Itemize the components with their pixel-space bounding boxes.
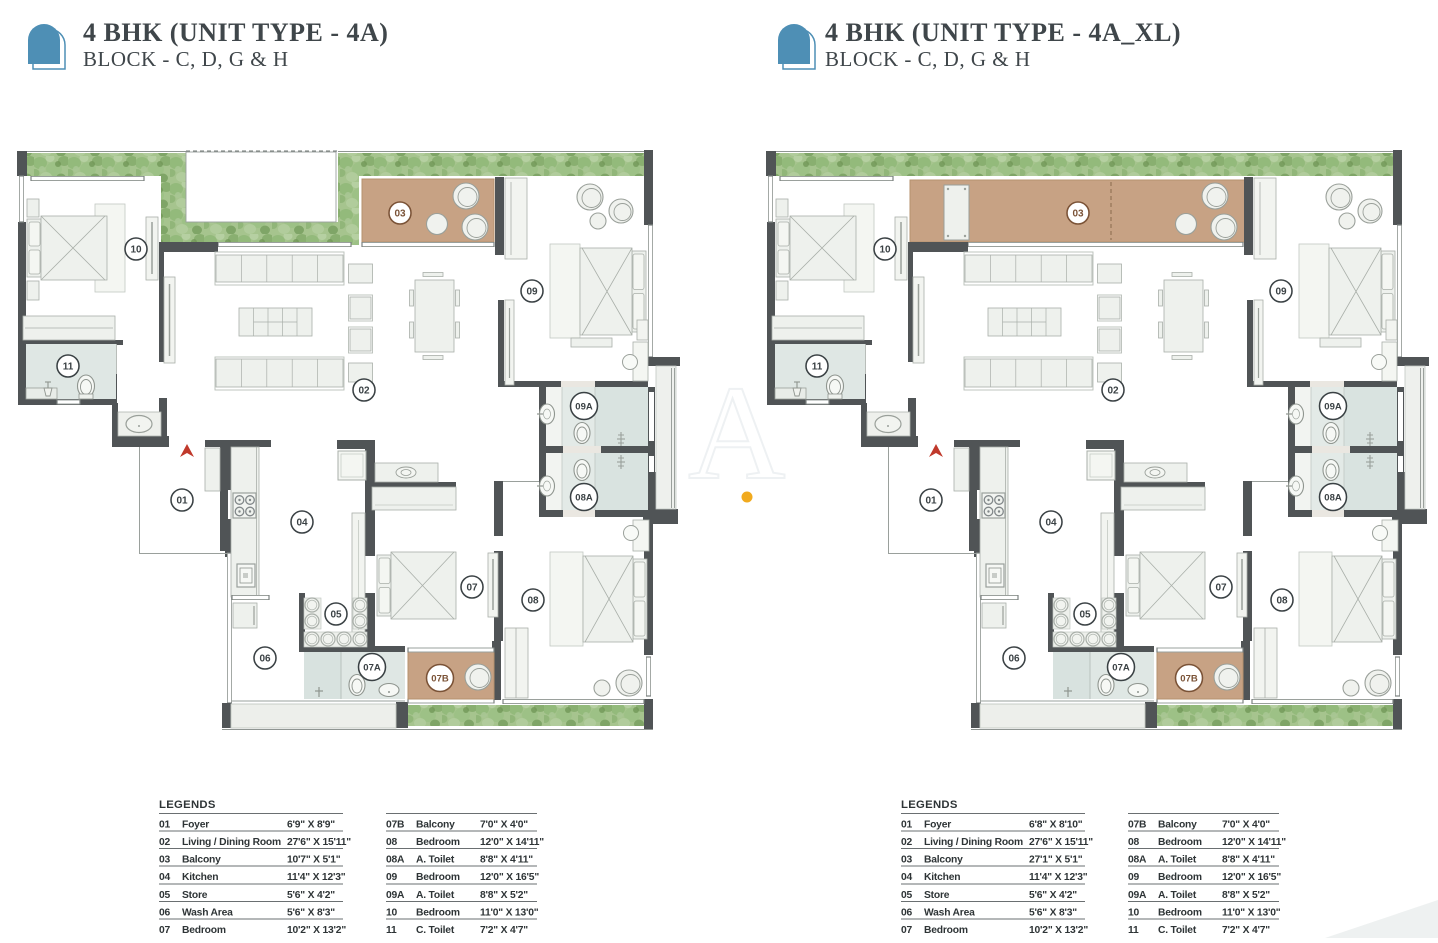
svg-text:11: 11: [63, 361, 74, 372]
svg-text:03: 03: [901, 854, 913, 865]
svg-text:05: 05: [1079, 609, 1091, 620]
svg-text:09: 09: [526, 286, 538, 297]
svg-text:Bedroom: Bedroom: [924, 925, 968, 936]
svg-text:6'8" X 8'10": 6'8" X 8'10": [1029, 819, 1083, 830]
svg-text:A. Toilet: A. Toilet: [1158, 890, 1197, 901]
svg-text:11'4" X 12'3": 11'4" X 12'3": [1029, 872, 1088, 883]
svg-text:BLOCK - C, D, G & H: BLOCK - C, D, G & H: [83, 47, 289, 71]
svg-text:08A: 08A: [1324, 492, 1342, 503]
svg-text:07A: 07A: [1112, 662, 1130, 673]
svg-text:11: 11: [386, 925, 397, 936]
svg-text:07: 07: [1215, 582, 1227, 593]
svg-text:09A: 09A: [1324, 401, 1342, 412]
svg-text:05: 05: [330, 609, 342, 620]
svg-text:10: 10: [1128, 907, 1140, 918]
svg-text:04: 04: [901, 872, 913, 883]
svg-text:07: 07: [466, 582, 478, 593]
svg-text:08: 08: [1276, 595, 1288, 606]
svg-text:04: 04: [159, 872, 171, 883]
svg-text:Balcony: Balcony: [416, 819, 455, 830]
svg-text:C. Toilet: C. Toilet: [416, 925, 455, 936]
svg-text:05: 05: [901, 890, 913, 901]
svg-text:Kitchen: Kitchen: [924, 872, 960, 883]
svg-text:11'0" X 13'0": 11'0" X 13'0": [1222, 907, 1281, 918]
svg-text:Bedroom: Bedroom: [416, 907, 460, 918]
svg-text:07: 07: [901, 925, 913, 936]
svg-text:A. Toilet: A. Toilet: [416, 854, 455, 865]
svg-text:7'0" X 4'0": 7'0" X 4'0": [480, 819, 528, 830]
svg-text:Living / Dining Room: Living / Dining Room: [924, 837, 1023, 848]
svg-text:Balcony: Balcony: [182, 854, 221, 865]
svg-text:5'6" X 8'3": 5'6" X 8'3": [1029, 907, 1077, 918]
svg-text:LEGENDS: LEGENDS: [159, 799, 216, 811]
svg-text:27'6" X 15'11": 27'6" X 15'11": [287, 837, 351, 848]
svg-text:09A: 09A: [575, 401, 593, 412]
svg-text:04: 04: [1045, 517, 1057, 528]
svg-text:A. Toilet: A. Toilet: [416, 890, 455, 901]
svg-text:LEGENDS: LEGENDS: [901, 799, 958, 811]
svg-text:06: 06: [1008, 653, 1020, 664]
svg-text:Bedroom: Bedroom: [1158, 837, 1202, 848]
svg-text:10'2" X 13'2": 10'2" X 13'2": [1029, 925, 1088, 936]
svg-text:5'6" X 4'2": 5'6" X 4'2": [287, 890, 335, 901]
svg-text:05: 05: [159, 890, 171, 901]
svg-text:5'6" X 8'3": 5'6" X 8'3": [287, 907, 335, 918]
svg-text:7'2" X 4'7": 7'2" X 4'7": [1222, 925, 1270, 936]
svg-text:10: 10: [386, 907, 398, 918]
svg-text:Wash Area: Wash Area: [924, 907, 975, 918]
svg-text:A. Toilet: A. Toilet: [1158, 854, 1197, 865]
svg-text:11'4" X 12'3": 11'4" X 12'3": [287, 872, 346, 883]
svg-text:02: 02: [159, 837, 171, 848]
svg-text:Foyer: Foyer: [182, 819, 209, 830]
svg-text:Bedroom: Bedroom: [416, 872, 460, 883]
svg-text:08A: 08A: [386, 854, 405, 865]
svg-text:07B: 07B: [431, 673, 449, 684]
svg-text:02: 02: [358, 385, 370, 396]
svg-text:07B: 07B: [1180, 673, 1198, 684]
svg-text:04: 04: [296, 517, 308, 528]
svg-text:08: 08: [1128, 837, 1140, 848]
svg-text:27'1" X 5'1": 27'1" X 5'1": [1029, 854, 1083, 865]
svg-text:10: 10: [130, 244, 142, 255]
svg-text:4 BHK (UNIT TYPE - 4A): 4 BHK (UNIT TYPE - 4A): [83, 18, 388, 47]
svg-text:Wash Area: Wash Area: [182, 907, 233, 918]
svg-text:7'2" X 4'7": 7'2" X 4'7": [480, 925, 528, 936]
svg-text:07B: 07B: [386, 819, 404, 830]
svg-text:BLOCK - C, D, G & H: BLOCK - C, D, G & H: [825, 47, 1031, 71]
svg-text:08: 08: [527, 595, 539, 606]
svg-text:C. Toilet: C. Toilet: [1158, 925, 1197, 936]
svg-text:11: 11: [1128, 925, 1139, 936]
svg-text:Bedroom: Bedroom: [1158, 872, 1202, 883]
svg-text:02: 02: [901, 837, 913, 848]
svg-text:6'9" X 8'9": 6'9" X 8'9": [287, 819, 335, 830]
svg-text:Bedroom: Bedroom: [1158, 907, 1202, 918]
svg-text:12'0" X 16'5": 12'0" X 16'5": [480, 872, 539, 883]
svg-text:8'8" X 4'11": 8'8" X 4'11": [1222, 854, 1275, 865]
svg-text:01: 01: [159, 819, 171, 830]
svg-text:01: 01: [925, 495, 937, 506]
svg-text:Balcony: Balcony: [1158, 819, 1197, 830]
svg-text:12'0" X 14'11": 12'0" X 14'11": [480, 837, 544, 848]
svg-text:8'8" X 5'2": 8'8" X 5'2": [1222, 890, 1270, 901]
svg-text:07A: 07A: [363, 662, 381, 673]
svg-text:06: 06: [901, 907, 913, 918]
svg-text:Bedroom: Bedroom: [416, 837, 460, 848]
svg-text:Bedroom: Bedroom: [182, 925, 226, 936]
svg-text:7'0" X 4'0": 7'0" X 4'0": [1222, 819, 1270, 830]
svg-text:01: 01: [901, 819, 913, 830]
svg-text:Balcony: Balcony: [924, 854, 963, 865]
svg-text:07: 07: [159, 925, 171, 936]
svg-text:10'2" X 13'2": 10'2" X 13'2": [287, 925, 346, 936]
svg-text:10'7" X 5'1": 10'7" X 5'1": [287, 854, 341, 865]
svg-text:Kitchen: Kitchen: [182, 872, 218, 883]
svg-text:Store: Store: [924, 890, 950, 901]
svg-text:09: 09: [1275, 286, 1287, 297]
svg-text:12'0" X 14'11": 12'0" X 14'11": [1222, 837, 1286, 848]
svg-text:07B: 07B: [1128, 819, 1146, 830]
svg-text:09A: 09A: [1128, 890, 1147, 901]
svg-text:27'6" X 15'11": 27'6" X 15'11": [1029, 837, 1093, 848]
svg-text:09A: 09A: [386, 890, 405, 901]
svg-text:Foyer: Foyer: [924, 819, 951, 830]
svg-text:Store: Store: [182, 890, 208, 901]
svg-text:5'6" X 4'2": 5'6" X 4'2": [1029, 890, 1077, 901]
svg-text:06: 06: [259, 653, 271, 664]
svg-text:03: 03: [1072, 208, 1084, 219]
svg-text:11: 11: [812, 361, 823, 372]
svg-text:12'0" X 16'5": 12'0" X 16'5": [1222, 872, 1281, 883]
svg-text:08A: 08A: [1128, 854, 1147, 865]
svg-text:08A: 08A: [575, 492, 593, 503]
svg-text:06: 06: [159, 907, 171, 918]
svg-text:8'8" X 5'2": 8'8" X 5'2": [480, 890, 528, 901]
svg-text:Living / Dining Room: Living / Dining Room: [182, 837, 281, 848]
svg-text:08: 08: [386, 837, 398, 848]
svg-text:01: 01: [176, 495, 188, 506]
svg-text:09: 09: [386, 872, 398, 883]
svg-text:03: 03: [394, 208, 406, 219]
svg-text:10: 10: [879, 244, 891, 255]
svg-text:09: 09: [1128, 872, 1140, 883]
svg-text:8'8" X 4'11": 8'8" X 4'11": [480, 854, 533, 865]
svg-text:03: 03: [159, 854, 171, 865]
svg-text:11'0" X 13'0": 11'0" X 13'0": [480, 907, 539, 918]
svg-text:4 BHK (UNIT TYPE - 4A_XL): 4 BHK (UNIT TYPE - 4A_XL): [825, 18, 1181, 47]
svg-text:02: 02: [1107, 385, 1119, 396]
